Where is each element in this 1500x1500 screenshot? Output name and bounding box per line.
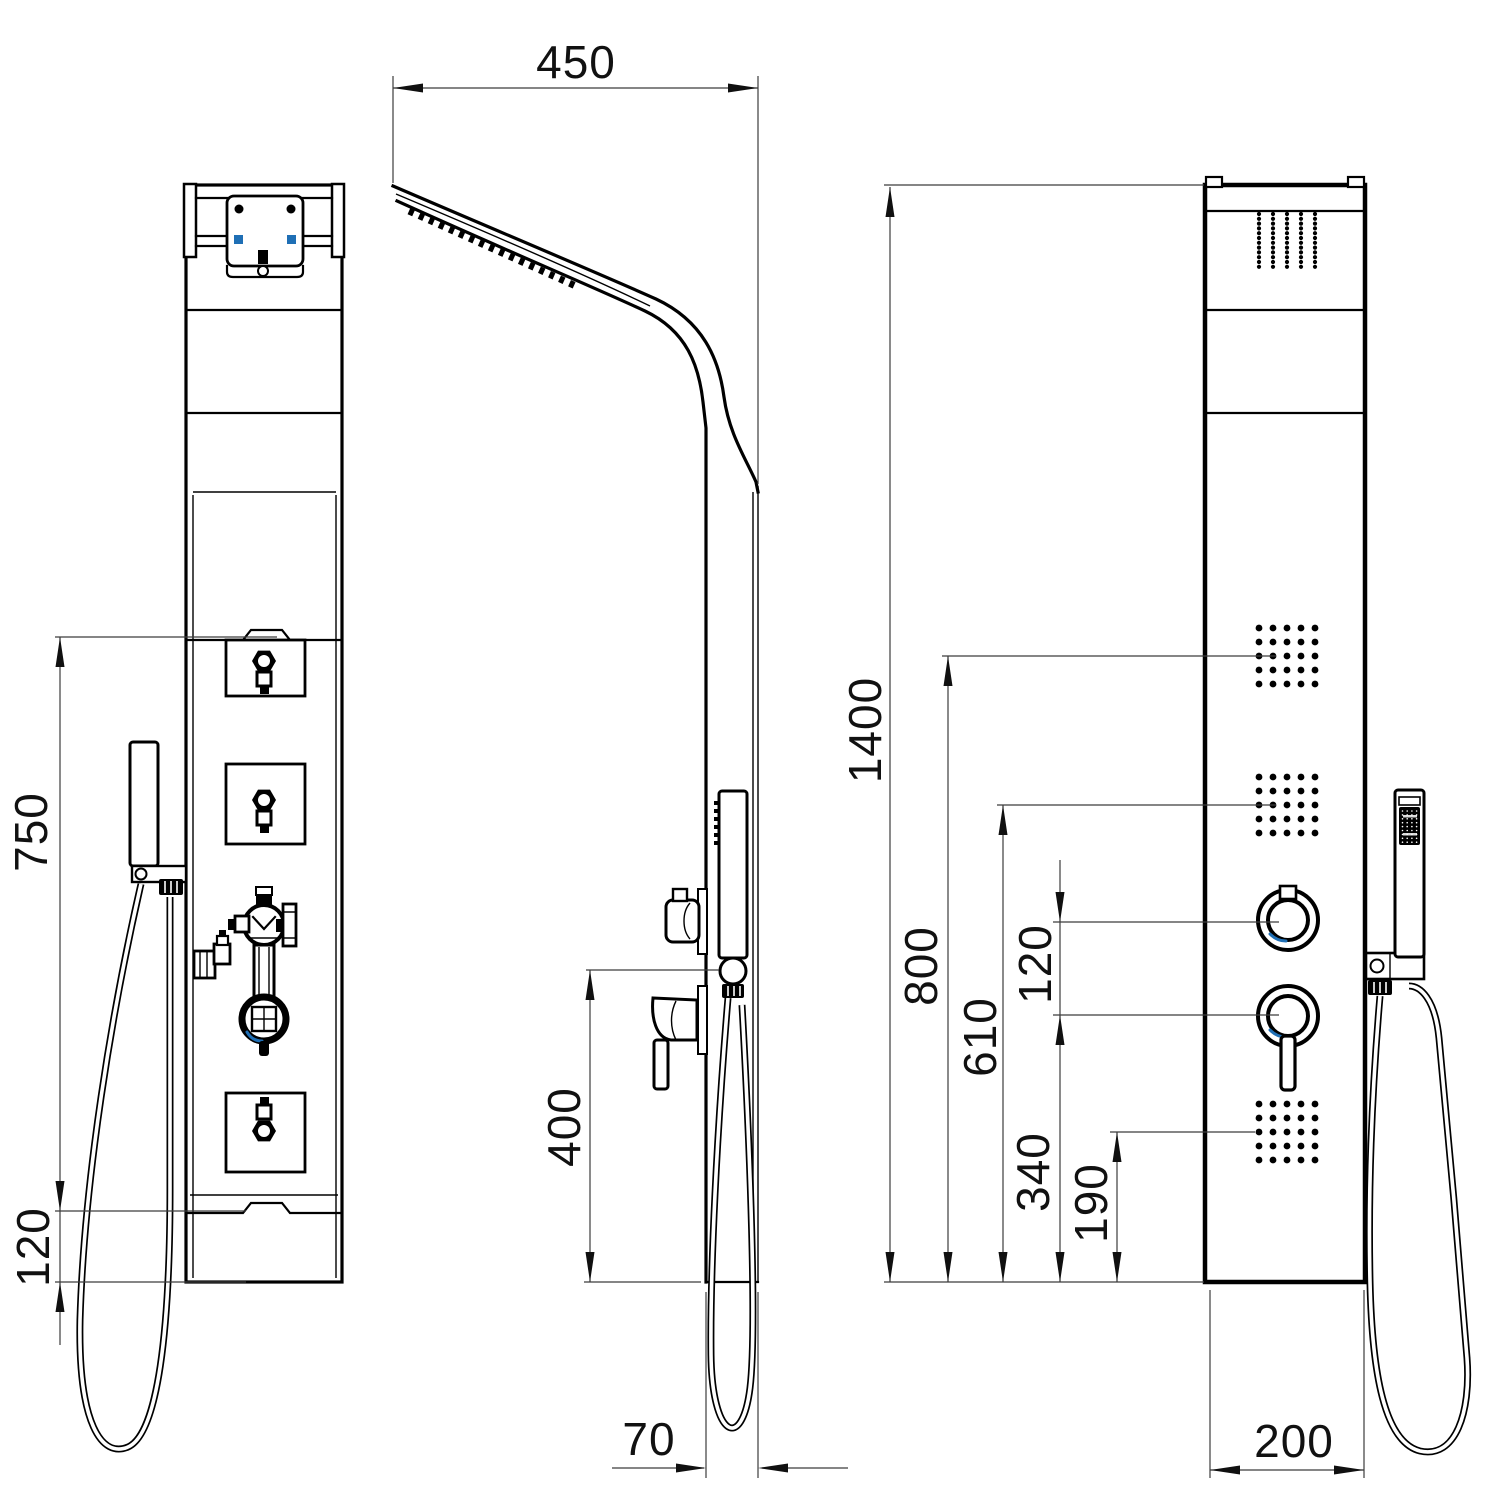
nozzle-dot xyxy=(1270,1101,1277,1108)
nozzle-dot xyxy=(1402,838,1404,840)
nozzle-dot xyxy=(1257,265,1261,269)
nozzle-dot xyxy=(1312,1157,1319,1164)
nozzle-dot xyxy=(1312,639,1319,646)
shower-panel-drawing xyxy=(0,0,1500,1500)
dim-1400-lines xyxy=(884,185,1204,1282)
nozzle-dot xyxy=(1284,667,1291,674)
nozzle-dot xyxy=(1298,667,1305,674)
nozzle-dot xyxy=(1313,265,1317,269)
nozzle-dot xyxy=(1416,841,1418,843)
nozzle-dot xyxy=(1284,1157,1291,1164)
nozzle-dot xyxy=(1270,625,1277,632)
nozzle-dot xyxy=(1270,816,1277,823)
nozzle-dot xyxy=(1256,639,1263,646)
nozzle-dot xyxy=(1257,212,1261,216)
nozzle-dot xyxy=(1284,788,1291,795)
nozzle-dot xyxy=(1312,774,1319,781)
nozzle-dot xyxy=(1271,236,1275,240)
nozzle-dot xyxy=(1416,818,1418,820)
bracket-tab xyxy=(1348,177,1364,187)
nozzle-dot xyxy=(1299,246,1303,250)
nozzle-dot xyxy=(1284,653,1291,660)
rain-head-nozzles xyxy=(409,211,578,287)
nozzle-dot xyxy=(1299,222,1303,226)
nozzle-dot xyxy=(1298,788,1305,795)
nozzle-dot xyxy=(1416,826,1418,828)
nozzle-dot xyxy=(1313,217,1317,221)
nozzle-dot xyxy=(1406,810,1408,812)
nozzle-dot xyxy=(1256,1115,1263,1122)
nozzle-dot xyxy=(1285,265,1289,269)
nozzle-dot xyxy=(1411,818,1413,820)
nozzle-dot xyxy=(1271,222,1275,226)
nozzle-dot xyxy=(1271,250,1275,254)
nozzle-dot xyxy=(1271,265,1275,269)
nozzle-dot xyxy=(1299,255,1303,259)
nozzle-dot xyxy=(1298,1129,1305,1136)
inlet-fitting xyxy=(252,651,276,694)
nozzle-dot xyxy=(1416,822,1418,824)
hand-shower-hose xyxy=(80,884,170,1449)
nozzle-dot xyxy=(1299,217,1303,221)
nozzle-dot xyxy=(1285,260,1289,264)
screw-blue xyxy=(287,235,296,244)
nozzle-dot xyxy=(1284,802,1291,809)
nozzle-dot xyxy=(1285,241,1289,245)
nozzle-dot xyxy=(1257,222,1261,226)
nozzle-dot xyxy=(1284,1143,1291,1150)
nozzle-dot xyxy=(1299,265,1303,269)
nozzle-dot xyxy=(1285,246,1289,250)
nozzle-dot xyxy=(1312,802,1319,809)
nozzle-dot xyxy=(1284,1115,1291,1122)
nozzle-dot xyxy=(1402,822,1404,824)
dim-label-200: 200 xyxy=(1254,1418,1334,1464)
technical-drawing-page: 450 750 120 400 70 1400 800 610 120 340 … xyxy=(0,0,1500,1500)
nozzle-dot xyxy=(1257,250,1261,254)
screw xyxy=(235,205,244,214)
inlet-fitting xyxy=(252,1097,276,1141)
diverter-knob-side xyxy=(666,889,707,954)
nozzle-dot xyxy=(1406,838,1408,840)
nozzle-dot xyxy=(1285,212,1289,216)
nozzle-dot xyxy=(1313,222,1317,226)
nozzle-dot xyxy=(1313,260,1317,264)
nozzle-dot xyxy=(1270,830,1277,837)
nozzle-dot xyxy=(1298,1143,1305,1150)
nozzle-dot xyxy=(1299,231,1303,235)
dim-label-400: 400 xyxy=(541,1087,587,1167)
nozzle-dot xyxy=(1257,231,1261,235)
nozzle-dot xyxy=(1270,1115,1277,1122)
nozzle-dot xyxy=(1284,774,1291,781)
nozzle-dot xyxy=(1284,1101,1291,1108)
nozzle-dot xyxy=(1416,838,1418,840)
nozzle-dot xyxy=(1299,212,1303,216)
nozzle-dot xyxy=(1270,667,1277,674)
nozzle-dot xyxy=(1299,250,1303,254)
nozzle-dot xyxy=(1312,653,1319,660)
nozzle-dot xyxy=(1285,217,1289,221)
nozzle-dot xyxy=(1312,1129,1319,1136)
nozzle-dot xyxy=(1285,222,1289,226)
hand-shower-holder xyxy=(720,958,746,984)
nozzle-dot xyxy=(1312,830,1319,837)
nozzle-dot xyxy=(1299,226,1303,230)
nozzle-dot xyxy=(1406,822,1408,824)
mixer-lever xyxy=(1281,1036,1295,1090)
nozzle-dot xyxy=(1256,774,1263,781)
nozzle-dot xyxy=(1271,255,1275,259)
mixer-lever-side xyxy=(653,986,707,1089)
dim-label-450: 450 xyxy=(536,39,616,85)
nozzle-dot xyxy=(1271,226,1275,230)
nozzle-dot xyxy=(1285,231,1289,235)
nozzle-dot xyxy=(1402,810,1404,812)
nozzle-dot xyxy=(1284,681,1291,688)
screw-blue xyxy=(234,235,243,244)
nozzle-dot xyxy=(1257,226,1261,230)
nozzle-dot xyxy=(1411,841,1413,843)
nozzle-dot xyxy=(1257,246,1261,250)
nozzle-dot xyxy=(1313,236,1317,240)
nozzle-dot xyxy=(1402,818,1404,820)
nozzle-dot xyxy=(1271,217,1275,221)
bracket-hook xyxy=(258,250,268,264)
nozzle-dot xyxy=(1271,231,1275,235)
nozzle-dot xyxy=(1270,788,1277,795)
nozzle-dot xyxy=(1406,830,1408,832)
front-view xyxy=(1205,177,1468,1452)
dim-label-800: 800 xyxy=(898,926,944,1006)
nozzle-dot xyxy=(1256,816,1263,823)
nozzle-dot xyxy=(1298,830,1305,837)
nozzle-dot xyxy=(1299,260,1303,264)
nozzle-dot xyxy=(1313,231,1317,235)
dim-label-70: 70 xyxy=(622,1416,675,1462)
screw xyxy=(287,205,296,214)
nozzle-dot xyxy=(1285,250,1289,254)
nozzle-dot xyxy=(1257,236,1261,240)
nozzle-dot xyxy=(1256,681,1263,688)
nozzle-dot xyxy=(1271,212,1275,216)
nozzle-dot xyxy=(1298,1157,1305,1164)
nozzle-dot xyxy=(1270,774,1277,781)
nozzle-dot xyxy=(1284,639,1291,646)
nozzle-dot xyxy=(1313,250,1317,254)
nozzle-dot xyxy=(1411,838,1413,840)
nozzle-dot xyxy=(1411,822,1413,824)
nozzle-dot xyxy=(1312,1115,1319,1122)
hand-shower xyxy=(717,791,748,998)
nozzle-dot xyxy=(1270,681,1277,688)
nozzle-dot xyxy=(1298,625,1305,632)
nozzle-dot xyxy=(1299,236,1303,240)
nozzle-dot xyxy=(1284,1129,1291,1136)
hand-shower xyxy=(130,742,186,895)
nozzle-dot xyxy=(1285,255,1289,259)
nozzle-dot xyxy=(1256,625,1263,632)
nozzle-dot xyxy=(1271,241,1275,245)
bracket-tab xyxy=(1206,177,1222,187)
nozzle-dot xyxy=(1257,260,1261,264)
nozzle-dot xyxy=(1257,217,1261,221)
nozzle-dot xyxy=(1312,816,1319,823)
nozzle-dot xyxy=(1298,639,1305,646)
dim-label-610: 610 xyxy=(957,997,1003,1077)
hand-shower-hose xyxy=(711,998,753,1428)
nozzle-dot xyxy=(1271,260,1275,264)
nozzle-dot xyxy=(1313,226,1317,230)
nozzle-dot xyxy=(1298,681,1305,688)
nozzle-dot xyxy=(1256,1129,1263,1136)
nozzle-dot xyxy=(1416,810,1418,812)
nozzle-dot xyxy=(1411,826,1413,828)
nozzle-dot xyxy=(1312,788,1319,795)
dim-label-750: 750 xyxy=(8,792,54,872)
nozzle-dot xyxy=(1298,1101,1305,1108)
nozzle-dot xyxy=(1298,1115,1305,1122)
nozzle-dot xyxy=(1271,246,1275,250)
hand-shower xyxy=(1366,790,1424,995)
nozzle-dot xyxy=(1270,1129,1277,1136)
wall-lines xyxy=(753,486,758,1282)
nozzle-dot xyxy=(1406,841,1408,843)
nozzle-dot xyxy=(1257,241,1261,245)
nozzle-dot xyxy=(1411,810,1413,812)
dim-label-120-right: 120 xyxy=(1012,924,1058,1004)
nozzle-dot xyxy=(1298,653,1305,660)
nozzle-dot xyxy=(1416,830,1418,832)
dim-label-190: 190 xyxy=(1068,1163,1114,1243)
nozzle-dot xyxy=(1256,788,1263,795)
nozzle-dot xyxy=(1298,802,1305,809)
nozzle-dot xyxy=(1256,1101,1263,1108)
nozzle-dot xyxy=(1284,625,1291,632)
dim-label-340: 340 xyxy=(1010,1132,1056,1212)
nozzle-dot xyxy=(1298,774,1305,781)
nozzle-dot xyxy=(1402,826,1404,828)
nozzle-dot xyxy=(1312,681,1319,688)
nozzle-dot xyxy=(1299,241,1303,245)
nozzle-dot xyxy=(1312,1101,1319,1108)
nozzle-dot xyxy=(1256,1143,1263,1150)
nozzle-dot xyxy=(1256,1157,1263,1164)
nozzle-dot xyxy=(1270,1143,1277,1150)
hand-shower-hose xyxy=(1369,986,1467,1452)
nozzle-dot xyxy=(1406,818,1408,820)
nozzle-dot xyxy=(1312,1143,1319,1150)
nozzle-dot xyxy=(1256,667,1263,674)
dim-label-120-left: 120 xyxy=(10,1207,56,1287)
side-view xyxy=(393,186,758,1428)
inlet-fitting xyxy=(252,790,276,833)
nozzle-dot xyxy=(1402,830,1404,832)
nozzle-dot xyxy=(1270,1157,1277,1164)
nozzle-dot xyxy=(1406,826,1408,828)
nozzle-dot xyxy=(1313,246,1317,250)
back-view xyxy=(80,184,344,1449)
nozzle-dot xyxy=(1284,830,1291,837)
nozzle-dot xyxy=(1285,226,1289,230)
nozzle-dot xyxy=(1313,241,1317,245)
nozzle-dot xyxy=(1312,625,1319,632)
nozzle-dot xyxy=(1411,830,1413,832)
dim-label-1400: 1400 xyxy=(842,677,888,783)
nozzle-dot xyxy=(1313,255,1317,259)
nozzle-dot xyxy=(1313,212,1317,216)
nozzle-dot xyxy=(1298,816,1305,823)
nozzle-dot xyxy=(1312,667,1319,674)
nozzle-dot xyxy=(1257,255,1261,259)
nozzle-dot xyxy=(1256,830,1263,837)
nozzle-dot xyxy=(1285,236,1289,240)
nozzle-dot xyxy=(1284,816,1291,823)
nozzle-dot xyxy=(1270,639,1277,646)
nozzle-dot xyxy=(1402,841,1404,843)
